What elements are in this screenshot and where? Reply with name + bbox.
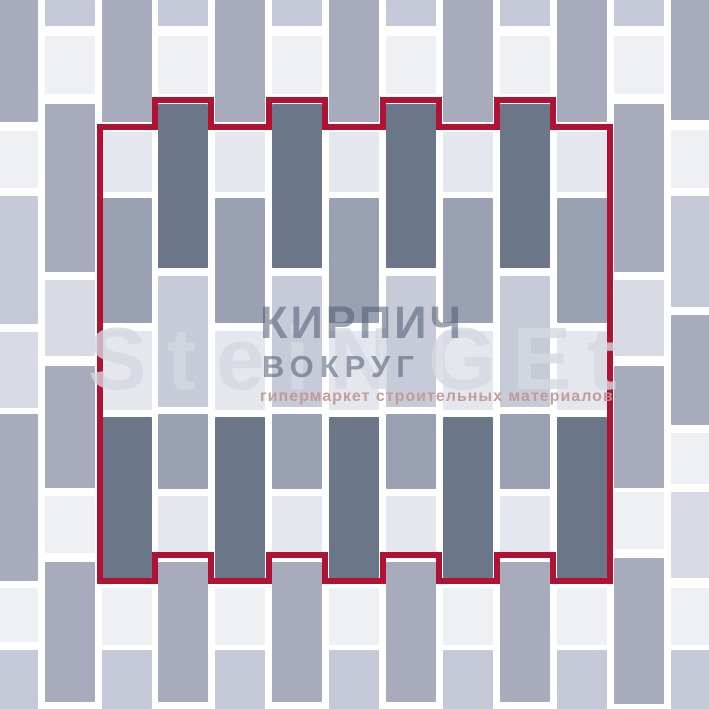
brick: [443, 650, 493, 709]
brick: [45, 36, 95, 94]
brick: [272, 276, 322, 407]
brick: [0, 588, 38, 642]
brick: [215, 331, 265, 410]
brick: [0, 0, 38, 122]
brick: [557, 417, 607, 578]
brick: [102, 0, 152, 122]
brick: [329, 650, 379, 709]
brick: [443, 198, 493, 323]
brick: [272, 0, 322, 26]
brick: [0, 414, 38, 581]
brick: [500, 104, 550, 268]
brick: [671, 0, 709, 120]
brick: [102, 417, 152, 578]
brick: [272, 36, 322, 94]
brick: [0, 196, 38, 324]
brick: [671, 650, 709, 709]
brick: [0, 650, 38, 709]
brick: [329, 132, 379, 192]
brick: [386, 414, 436, 489]
brick: [386, 104, 436, 268]
brick: [102, 650, 152, 709]
brick: [45, 366, 95, 488]
brick: [500, 414, 550, 489]
brick: [0, 131, 38, 188]
brick: [500, 562, 550, 702]
brick: [215, 132, 265, 192]
brick: [158, 562, 208, 702]
brick: [158, 276, 208, 407]
brick: [671, 588, 709, 645]
brick: [329, 588, 379, 645]
brick: [102, 132, 152, 192]
brick: [102, 198, 152, 323]
brick: [45, 0, 95, 26]
brick: [500, 496, 550, 553]
brick: [557, 0, 607, 122]
brick: [500, 276, 550, 407]
brick: [215, 417, 265, 578]
brick: [671, 196, 709, 307]
brick: [0, 332, 38, 408]
brick: [671, 433, 709, 484]
brick: [272, 496, 322, 553]
brick: [557, 650, 607, 709]
brick: [158, 0, 208, 26]
brick: [386, 36, 436, 94]
brick: [329, 331, 379, 410]
brick: [614, 104, 664, 272]
brick: [386, 562, 436, 702]
brick: [45, 496, 95, 553]
brick: [614, 0, 664, 26]
brick: [386, 496, 436, 553]
brick: [158, 496, 208, 553]
brick: [386, 276, 436, 407]
brick: [272, 562, 322, 702]
brick: [671, 130, 709, 188]
brick: [45, 280, 95, 356]
brick: [443, 588, 493, 645]
brick: [158, 104, 208, 268]
brick: [557, 331, 607, 410]
brick: [45, 104, 95, 272]
brick: [614, 558, 664, 704]
brick: [215, 650, 265, 709]
brick: [329, 0, 379, 122]
brick: [329, 198, 379, 323]
brick: [500, 0, 550, 26]
brick: [215, 588, 265, 645]
brick: [443, 417, 493, 578]
paving-pattern-canvas: SteiN GEt КИРПИЧ ВОКРУГ гипермаркет стро…: [0, 0, 709, 709]
brick: [215, 0, 265, 122]
brick: [614, 280, 664, 356]
brick: [443, 0, 493, 122]
brick: [329, 417, 379, 578]
brick: [671, 315, 709, 425]
brick: [443, 132, 493, 192]
brick: [215, 198, 265, 323]
brick: [614, 366, 664, 488]
brick: [614, 492, 664, 549]
brick: [102, 331, 152, 410]
brick: [614, 36, 664, 94]
brick: [557, 198, 607, 323]
brick: [557, 132, 607, 192]
brick: [272, 414, 322, 489]
brick: [102, 588, 152, 645]
brick: [158, 414, 208, 489]
brick: [443, 331, 493, 410]
brick: [272, 104, 322, 268]
brick: [671, 492, 709, 578]
brick: [557, 588, 607, 645]
brick: [45, 562, 95, 702]
brick: [386, 0, 436, 26]
brick: [158, 36, 208, 94]
brick: [500, 36, 550, 94]
